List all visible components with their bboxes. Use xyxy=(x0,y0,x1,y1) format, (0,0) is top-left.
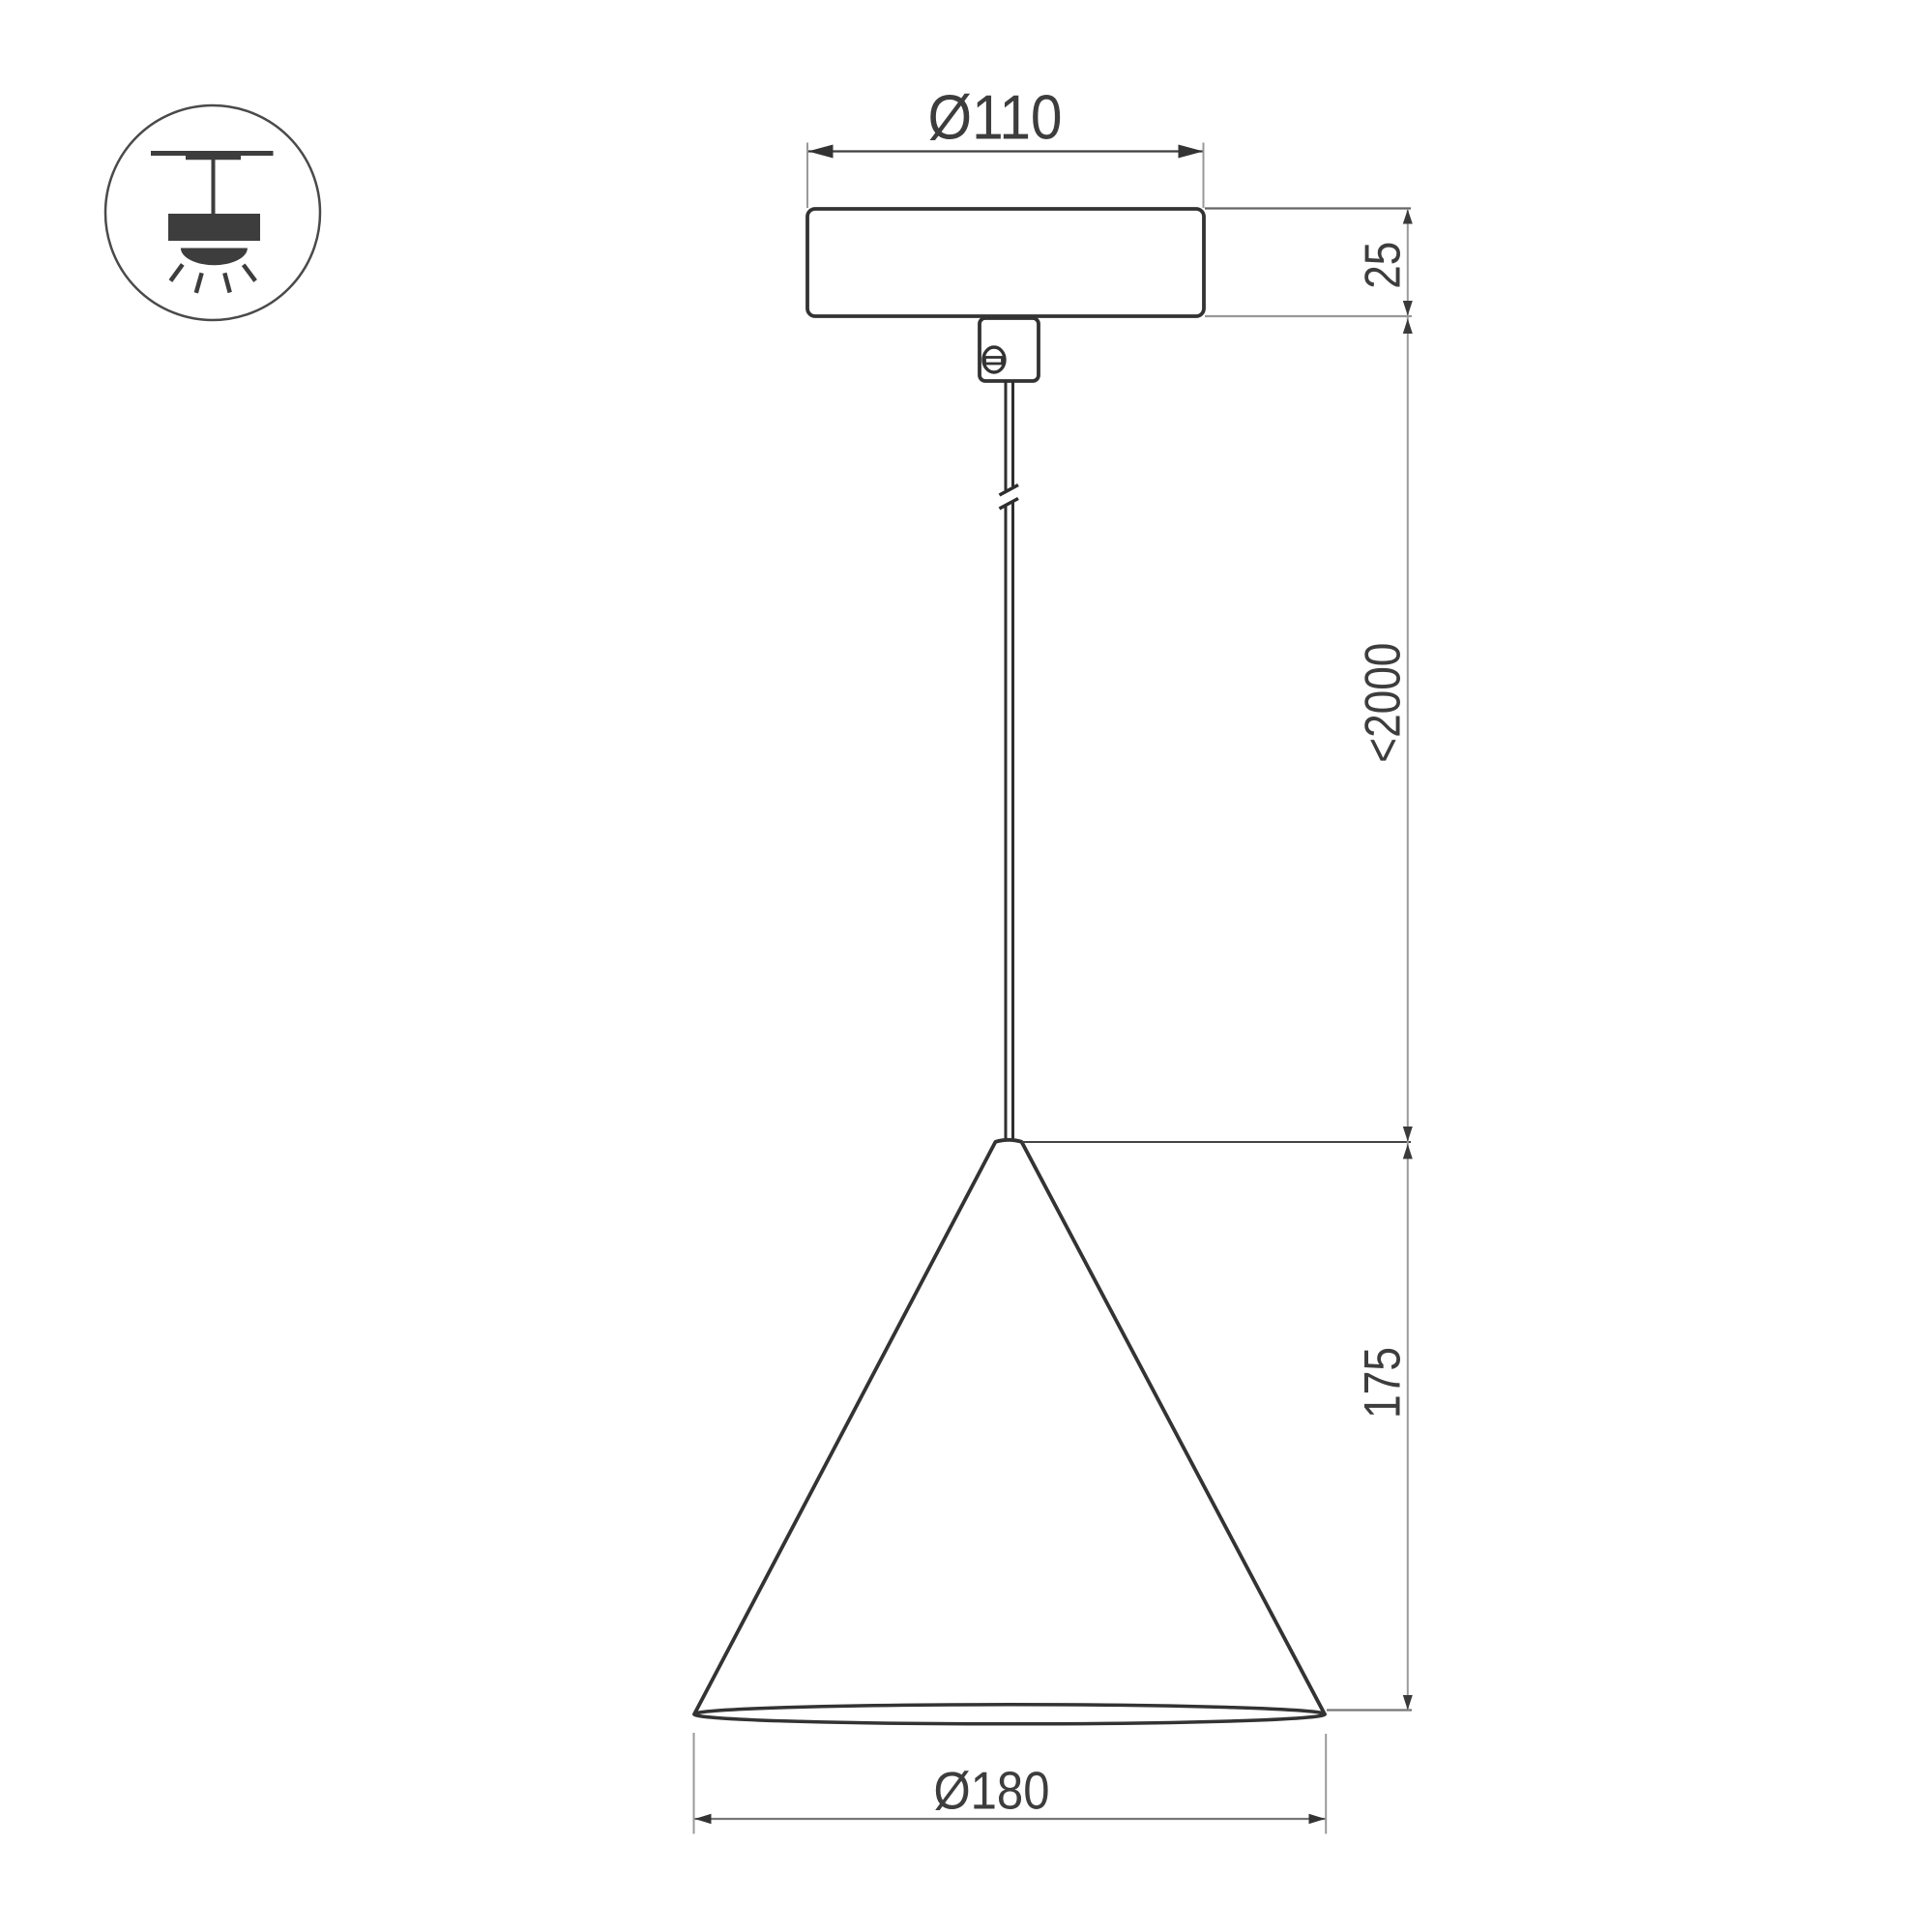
svg-text:<2000: <2000 xyxy=(1356,643,1412,763)
svg-text:Ø180: Ø180 xyxy=(934,1762,1050,1821)
svg-text:175: 175 xyxy=(1355,1347,1412,1419)
svg-text:Ø110: Ø110 xyxy=(928,82,1063,153)
svg-text:25: 25 xyxy=(1356,242,1412,289)
